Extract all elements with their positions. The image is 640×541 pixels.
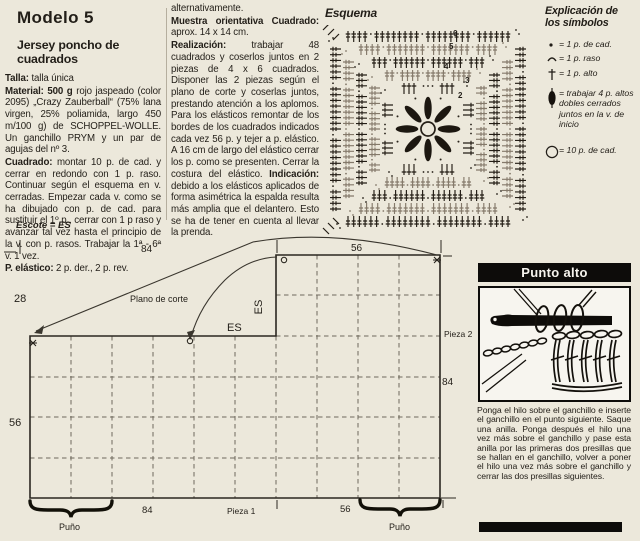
chain-dot [457,115,459,117]
tall-stitches [551,330,622,391]
puno-brace-right [360,500,440,516]
puff-petal [438,125,461,132]
puno-brace-left [30,501,112,517]
pieza1-label: Pieza 1 [227,506,256,516]
round-number: 6 [453,29,458,38]
chart-round-side [502,60,515,208]
instructions-text-2: alternativamente.Muestra orientativa Cua… [171,3,319,239]
bottom-black-bar [479,522,622,532]
instructions-column-2: alternativamente.Muestra orientativa Cua… [171,3,319,240]
legend-item: = 1 p. alto [545,68,640,81]
legend-item-label: = 1 p. alto [559,68,597,78]
plano-de-corte-label: Plano de corte [130,294,188,304]
measure-bottom-56: 56 [340,504,351,515]
chart-round-side [341,50,354,198]
magazine-page: Modelo 5 Jersey poncho de cuadrados Tall… [0,0,640,541]
center-ring [421,122,435,136]
grid-dashed-lines [30,255,440,498]
puff-petal [424,97,431,120]
slip-stitch-icon [545,53,559,63]
chain-dot [414,98,416,100]
chain-dot [397,115,399,117]
chart-round-side [388,164,454,177]
chart-round-side [380,89,393,155]
measure-left-28: 28 [14,293,26,305]
legend-title-line2: los símbolos [545,18,640,30]
round-number: 5 [449,42,454,51]
punto-alto-header: Punto alto [478,263,631,282]
legend-item: = 1 p. raso [545,53,640,63]
chain-dot [397,141,399,143]
chain-dot [457,141,459,143]
pattern-subtitle: Jersey poncho de cuadrados [17,38,161,66]
legend-item-label: = 1 p. de cad. [559,39,612,49]
chart-round-side [346,29,520,42]
cut-line-arrowhead [34,325,44,334]
chart-round-side [463,103,476,169]
puff-petal [424,139,431,162]
circle-marker-right [281,257,286,262]
chart-round-side [328,37,341,211]
legend-title-line1: Explicación de [545,6,640,18]
chart-round-side [354,63,367,185]
puff-stitch-icon [545,88,559,108]
paragraph: alternativamente. [171,3,319,15]
chain-ring-icon [545,145,559,159]
chart-round-side [372,55,494,68]
punto-alto-instructions: Ponga el hilo sobre el ganchillo e inser… [477,406,631,481]
layout-schematic: 84 28 Plano de corte ES ES 56 Pieza 2 84… [0,220,475,541]
cut-line [36,237,437,331]
legend-item-label: = 1 p. raso [559,53,600,63]
paragraph: Material: 500 g rojo jaspeado (color 209… [5,86,161,156]
chart-round-side [349,203,497,216]
chain-dot [440,98,442,100]
chart-round-side [367,76,380,172]
puff-petal [432,133,453,154]
round-number: 3 [465,76,470,85]
puff-petal [432,104,453,125]
puno-label-right: Puño [389,522,410,532]
chart-round-side [476,86,489,182]
yarn-strand [514,289,541,315]
puff-petal [403,133,424,154]
chain-dot [440,158,442,160]
esquema-title: Esquema [325,6,377,20]
symbol-legend: Explicación de los símbolos = 1 p. de ca… [545,6,640,159]
granny-square-chart: 23456 [322,25,536,235]
chart-round-side [515,47,528,221]
chain-dot [414,158,416,160]
crochet-hook [490,315,612,327]
puno-label-left: Puño [59,522,80,532]
crochet-hook-illustration [480,288,629,400]
chart-round-side [489,73,502,195]
legend-item: = 1 p. de cad. [545,39,640,49]
column-divider [166,8,167,220]
measure-left-56: 56 [9,417,21,429]
round-number: 4 [444,62,449,71]
paragraph: Talla: talla única [5,73,161,85]
star-marker-left [29,340,37,346]
chart-round-side [359,42,507,55]
star-marker-right [433,257,441,263]
legend-item-label: = 10 p. de cad. [559,145,617,155]
es-label-horizontal: ES [227,322,242,334]
hook-notch [493,318,496,321]
chart-round-side [375,177,471,190]
dimension-ticks [4,240,456,509]
paragraph: Muestra orientativa Cuadrado: aprox. 14 … [171,16,319,39]
es-label-vertical: ES [253,300,265,315]
punto-alto-illustration-box [478,286,631,402]
paragraph: Realización: trabajar 48 cuadrados y cos… [171,40,319,239]
fabric-edge [482,354,526,392]
round-number: 2 [458,91,463,100]
chain-edge [483,337,547,356]
legend-item-label: = trabajar 4 p. altos dobles cerrados ju… [559,88,640,130]
chart-round-side [362,190,484,203]
puff-petal [403,104,424,125]
measure-right-84: 84 [442,377,454,388]
measure-top-84: 84 [141,244,153,255]
pieza2-label: Pieza 2 [444,329,473,339]
chain-stitch-dot-icon [545,39,559,49]
page-title: Modelo 5 [17,8,161,28]
measure-top-56: 56 [351,243,363,254]
legend-item: = 10 p. de cad. [545,145,640,159]
working-yarn [579,290,596,307]
double-crochet-cross-icon [545,68,559,81]
puff-petal [396,125,419,132]
measure-bottom-84: 84 [142,505,153,516]
legend-item: = trabajar 4 p. altos dobles cerrados ju… [545,88,640,130]
